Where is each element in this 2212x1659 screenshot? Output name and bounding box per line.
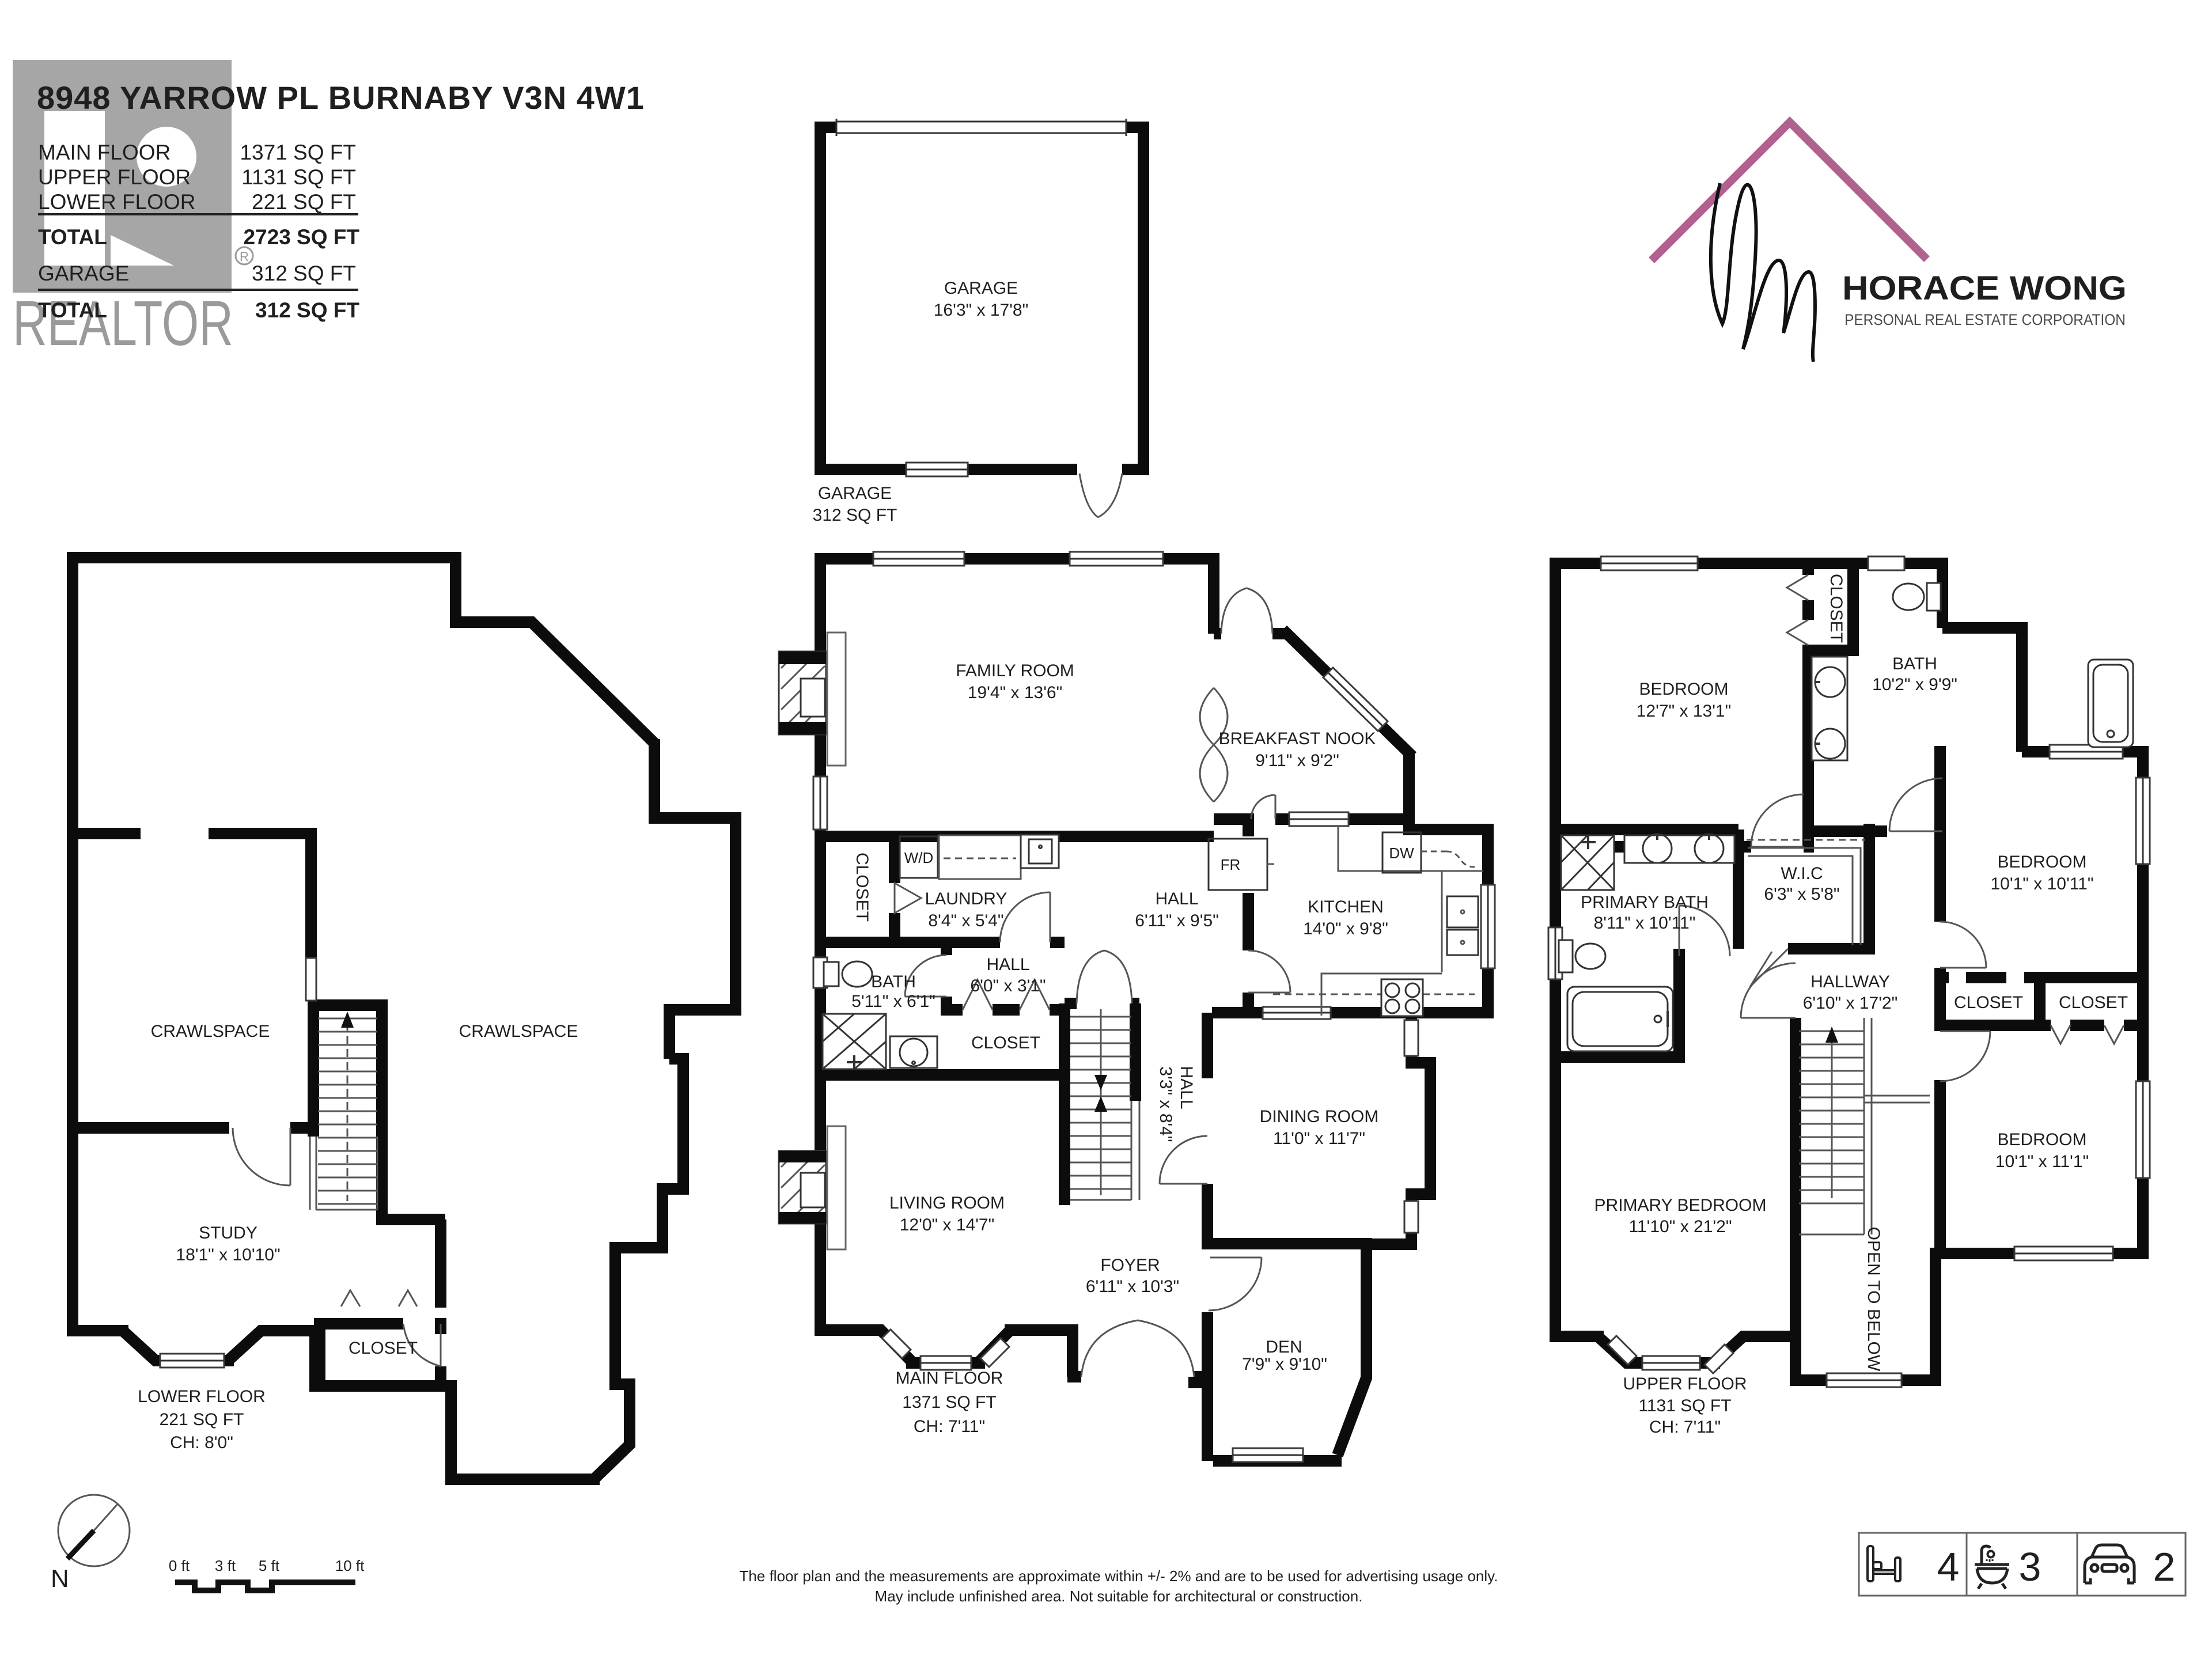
svg-text:STUDY: STUDY [199,1224,257,1243]
svg-text:FOYER: FOYER [1100,1256,1160,1275]
svg-text:DW: DW [1389,844,1414,862]
svg-text:HALL: HALL [1177,1066,1196,1109]
svg-text:CLOSET: CLOSET [2059,993,2128,1012]
svg-text:6'10" x 17'2": 6'10" x 17'2" [1803,994,1898,1013]
svg-text:3: 3 [2019,1544,2041,1589]
svg-text:PERSONAL REAL ESTATE CORPORATI: PERSONAL REAL ESTATE CORPORATION [1844,311,2126,328]
svg-text:HORACE WONG: HORACE WONG [1842,270,2127,307]
svg-text:LOWER FLOOR: LOWER FLOOR [38,190,195,214]
svg-text:HALL: HALL [986,955,1029,974]
svg-text:GARAGE: GARAGE [38,262,129,285]
svg-text:7'9" x 9'10": 7'9" x 9'10" [1242,1355,1327,1374]
svg-text:CLOSET: CLOSET [1954,993,2023,1012]
svg-text:HALLWAY: HALLWAY [1810,972,1890,991]
svg-text:BEDROOM: BEDROOM [1997,853,2086,872]
svg-text:14'0" x 9'8": 14'0" x 9'8" [1303,919,1388,938]
svg-text:LAUNDRY: LAUNDRY [925,889,1007,908]
svg-text:10 ft: 10 ft [335,1557,365,1574]
svg-text:CRAWLSPACE: CRAWLSPACE [459,1022,578,1041]
svg-text:12'0" x 14'7": 12'0" x 14'7" [900,1215,995,1234]
svg-text:BEDROOM: BEDROOM [1639,680,1728,699]
svg-text:312 SQ FT: 312 SQ FT [255,298,359,322]
svg-text:BATH: BATH [871,972,916,991]
svg-text:BATH: BATH [1892,654,1937,673]
svg-text:6'11" x 9'5": 6'11" x 9'5" [1135,911,1219,930]
svg-text:LIVING ROOM: LIVING ROOM [889,1194,1005,1213]
svg-text:CLOSET: CLOSET [853,853,872,922]
svg-text:UPPER FLOOR: UPPER FLOOR [38,165,191,189]
svg-text:OPEN TO BELOW: OPEN TO BELOW [1864,1227,1883,1372]
svg-text:The floor plan and the measure: The floor plan and the measurements are … [740,1567,1498,1585]
svg-text:16'3" x 17'8": 16'3" x 17'8" [934,301,1029,320]
svg-text:PRIMARY BATH: PRIMARY BATH [1581,893,1709,912]
svg-text:0 ft: 0 ft [169,1557,190,1574]
svg-text:9'11" x 9'2": 9'11" x 9'2" [1255,751,1339,770]
svg-text:DEN: DEN [1266,1338,1302,1357]
svg-text:CLOSET: CLOSET [349,1339,418,1358]
svg-text:R: R [240,249,249,264]
svg-text:1131 SQ FT: 1131 SQ FT [241,165,356,189]
svg-text:1371 SQ FT: 1371 SQ FT [240,141,356,164]
svg-text:MAIN FLOOR: MAIN FLOOR [38,141,171,164]
svg-text:BREAKFAST NOOK: BREAKFAST NOOK [1219,729,1376,748]
svg-text:11'0" x 11'7": 11'0" x 11'7" [1273,1129,1365,1148]
svg-text:May include unfinished area. N: May include unfinished area. Not suitabl… [875,1588,1363,1605]
svg-text:CH: 7'11": CH: 7'11" [914,1417,985,1436]
svg-text:HALL: HALL [1155,889,1198,908]
svg-text:8'11" x 10'11": 8'11" x 10'11" [1594,914,1696,933]
svg-text:221 SQ FT: 221 SQ FT [160,1410,244,1429]
svg-text:221 SQ FT: 221 SQ FT [252,190,356,214]
svg-text:3'3" x 8'4": 3'3" x 8'4" [1156,1066,1175,1142]
svg-text:KITCHEN: KITCHEN [1308,897,1384,916]
svg-text:DINING ROOM: DINING ROOM [1260,1107,1379,1126]
svg-text:10'2" x 9'9": 10'2" x 9'9" [1872,675,1957,694]
svg-text:6'11" x 10'3": 6'11" x 10'3" [1086,1277,1179,1296]
svg-text:5'11" x 6'1": 5'11" x 6'1" [851,992,935,1011]
svg-text:10'1" x 10'11": 10'1" x 10'11" [1991,874,2094,893]
svg-text:8'4" x 5'4": 8'4" x 5'4" [928,911,1003,930]
svg-text:W/D: W/D [904,849,934,866]
svg-text:CLOSET: CLOSET [971,1033,1040,1052]
svg-text:CLOSET: CLOSET [1827,574,1846,643]
svg-text:18'1" x 10'10": 18'1" x 10'10" [176,1245,280,1264]
svg-text:TOTAL: TOTAL [38,298,107,322]
svg-text:5 ft: 5 ft [259,1557,280,1574]
svg-text:LOWER FLOOR: LOWER FLOOR [138,1387,266,1406]
svg-text:BEDROOM: BEDROOM [1997,1130,2086,1149]
svg-text:19'4" x 13'6": 19'4" x 13'6" [968,683,1063,702]
svg-text:2: 2 [2153,1544,2176,1589]
svg-text:11'10" x 21'2": 11'10" x 21'2" [1629,1217,1732,1236]
svg-text:GARAGE: GARAGE [818,484,892,503]
svg-text:PRIMARY BEDROOM: PRIMARY BEDROOM [1594,1196,1767,1215]
svg-text:1131 SQ FT: 1131 SQ FT [1638,1396,1731,1415]
svg-text:312 SQ FT: 312 SQ FT [813,506,897,525]
svg-text:CH: 8'0": CH: 8'0" [170,1433,233,1452]
svg-text:W.I.C: W.I.C [1781,864,1823,883]
svg-text:3 ft: 3 ft [215,1557,236,1574]
svg-text:FAMILY ROOM: FAMILY ROOM [956,661,1074,680]
svg-text:CH: 7'11": CH: 7'11" [1649,1418,1721,1437]
svg-text:2723 SQ FT: 2723 SQ FT [243,225,359,249]
svg-text:12'7" x 13'1": 12'7" x 13'1" [1637,702,1732,721]
svg-text:CRAWLSPACE: CRAWLSPACE [151,1022,270,1041]
svg-text:10'1" x 11'1": 10'1" x 11'1" [1995,1152,2089,1171]
svg-text:TOTAL: TOTAL [38,225,107,249]
svg-text:4: 4 [1937,1544,1960,1589]
svg-text:FR: FR [1221,856,1241,873]
svg-text:8948 YARROW PL BURNABY V3N 4W1: 8948 YARROW PL BURNABY V3N 4W1 [37,79,645,116]
svg-text:GARAGE: GARAGE [944,279,1018,298]
svg-text:N: N [51,1565,69,1593]
svg-text:312 SQ FT: 312 SQ FT [252,262,356,285]
svg-text:MAIN FLOOR: MAIN FLOOR [896,1369,1003,1388]
svg-text:6'0" x 3'1": 6'0" x 3'1" [970,976,1046,995]
svg-text:UPPER FLOOR: UPPER FLOOR [1623,1374,1747,1393]
svg-text:1371 SQ FT: 1371 SQ FT [902,1393,996,1412]
svg-text:6'3" x 5'8": 6'3" x 5'8" [1764,885,1839,904]
